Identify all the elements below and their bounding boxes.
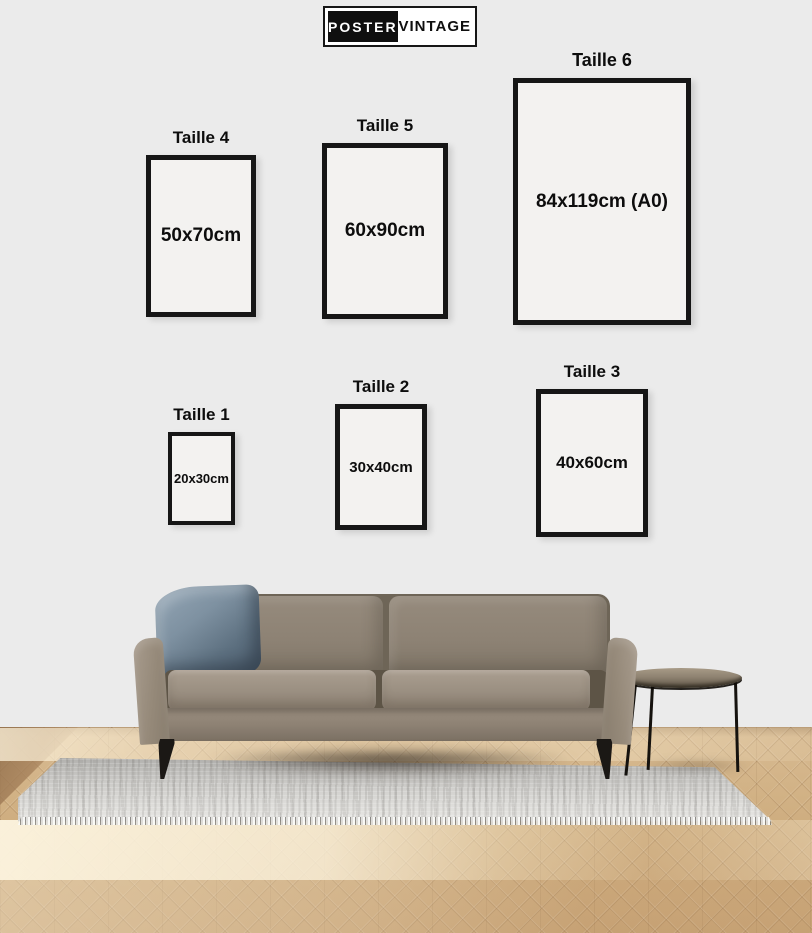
size-dimensions: 84x119cm (A0) (536, 191, 668, 213)
poster-frame: 50x70cm (146, 155, 256, 317)
poster-size-guide-image: POSTER VINTAGE Taille 4 50x70cm Taille 5… (0, 0, 812, 933)
size-label: Taille 6 (572, 50, 632, 71)
sofa-leg (155, 739, 175, 779)
sofa-base (150, 708, 621, 741)
size-label: Taille 2 (353, 377, 409, 397)
size-dimensions: 40x60cm (556, 453, 628, 473)
throw-pillow (154, 584, 261, 676)
poster-frame: 84x119cm (A0) (513, 78, 691, 325)
sofa-back-cushion-right (389, 596, 607, 676)
size-dimensions: 30x40cm (349, 459, 412, 476)
floor-light-wash (0, 880, 812, 933)
sofa (142, 590, 629, 782)
size-option-taille-3: Taille 3 40x60cm (536, 389, 648, 537)
size-option-taille-4: Taille 4 50x70cm (146, 155, 256, 317)
size-label: Taille 3 (564, 362, 620, 382)
size-label: Taille 1 (173, 405, 229, 425)
size-dimensions: 60x90cm (345, 220, 425, 242)
sofa-leg (596, 739, 616, 779)
logo-poster-badge: POSTER (328, 11, 398, 42)
sofa-seat-cushion-right (382, 670, 590, 712)
poster-frame: 20x30cm (168, 432, 235, 525)
sofa-seat-cushion-left (168, 670, 376, 712)
side-table (618, 664, 750, 776)
size-option-taille-2: Taille 2 30x40cm (335, 404, 427, 530)
logo-vintage-text: VINTAGE (398, 11, 472, 42)
size-dimensions: 20x30cm (174, 471, 229, 486)
size-dimensions: 50x70cm (161, 225, 241, 247)
floor-light-wash (0, 820, 812, 880)
table-leg (734, 682, 739, 772)
poster-frame: 60x90cm (322, 143, 448, 319)
brand-logo: POSTER VINTAGE (323, 6, 477, 47)
size-option-taille-1: Taille 1 20x30cm (168, 432, 235, 525)
table-top (620, 668, 742, 688)
size-option-taille-5: Taille 5 60x90cm (322, 143, 448, 319)
rug-fringe (18, 817, 772, 825)
poster-frame: 30x40cm (335, 404, 427, 530)
size-option-taille-6: Taille 6 84x119cm (A0) (513, 78, 691, 325)
size-label: Taille 4 (173, 128, 229, 148)
size-label: Taille 5 (357, 116, 413, 136)
table-leg (647, 686, 654, 770)
poster-frame: 40x60cm (536, 389, 648, 537)
